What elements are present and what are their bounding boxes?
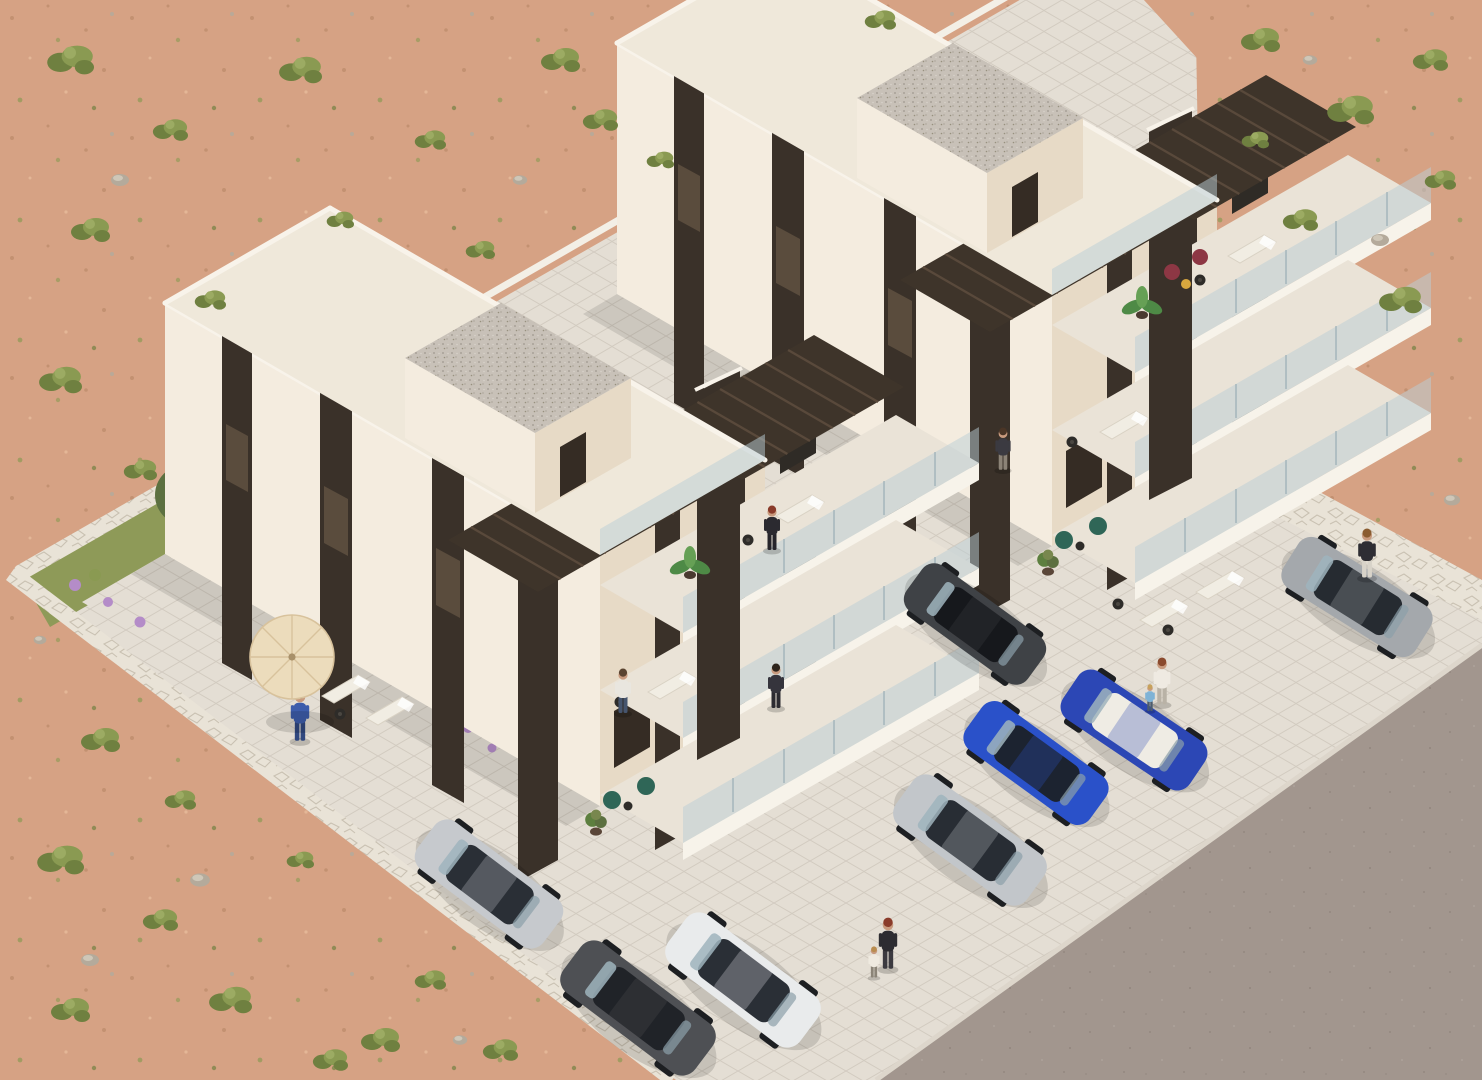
render-stage <box>0 0 1482 1080</box>
umbrella-shadow <box>266 711 334 733</box>
aerial-render-scene <box>0 0 1482 1080</box>
cream-parasol <box>250 615 334 699</box>
red-patio-chair <box>1164 264 1180 280</box>
yellow-table <box>1181 279 1191 289</box>
red-patio-chair <box>1192 249 1208 265</box>
